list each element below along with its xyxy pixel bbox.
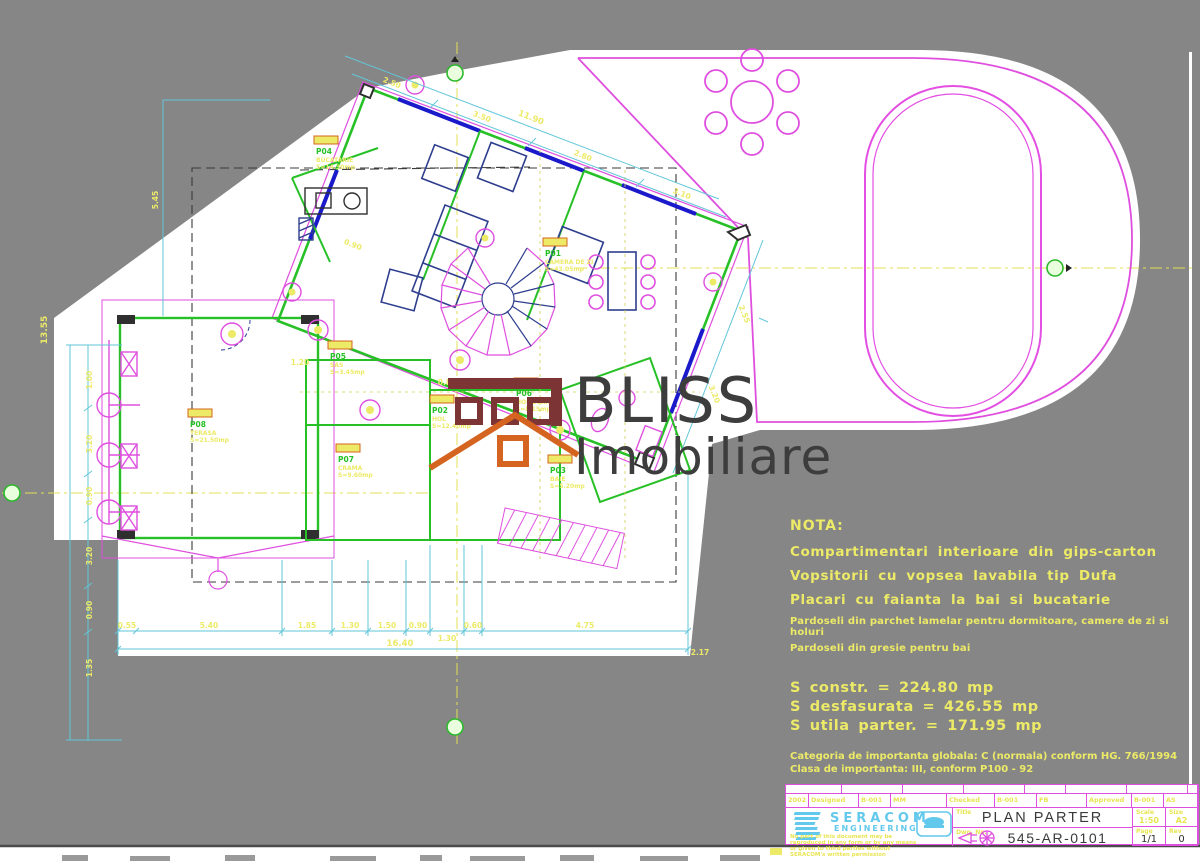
company-disclaimer: No part of this document may be reproduc…: [790, 834, 920, 858]
nota-line: Vopsitorii cu vopsea lavabila tip Dufa: [790, 568, 1190, 584]
tb-field: B-001: [1132, 794, 1164, 807]
nota-line: Compartimentari interioare din gips-cart…: [790, 544, 1190, 560]
svg-text:S=3.45mp: S=3.45mp: [330, 369, 365, 376]
svg-text:P08: P08: [190, 420, 206, 429]
svg-text:P01: P01: [545, 249, 561, 258]
watermark-brand: BLISS: [574, 372, 758, 429]
tb-field: B-001: [859, 794, 891, 807]
tb-field: Approved: [1087, 794, 1132, 807]
svg-text:S=21.50mp: S=21.50mp: [190, 437, 230, 444]
tb-field: AS: [1164, 794, 1198, 807]
rev-cell: Rev 0: [1166, 827, 1198, 846]
svg-text:1.50: 1.50: [378, 621, 397, 630]
cad-viewport: 0.55 5.40 1.85 1.30 1.50 0.90 1.30 0.60 …: [0, 0, 1200, 861]
svg-text:1.30: 1.30: [341, 621, 360, 630]
svg-text:TERASA: TERASA: [190, 430, 217, 437]
svg-text:1.00: 1.00: [85, 371, 94, 390]
svg-text:S=9.60mp: S=9.60mp: [338, 472, 373, 479]
svg-text:SAS: SAS: [330, 362, 343, 369]
format-label: Size: [1169, 809, 1183, 816]
drawing-number: 545-AR-0101: [983, 830, 1132, 846]
car-badge-icon: [916, 811, 952, 837]
scale-value: 1:50: [1133, 816, 1165, 825]
tb-field: 2002: [786, 794, 809, 807]
svg-text:3.20: 3.20: [85, 547, 94, 566]
svg-text:P06: P06: [516, 389, 532, 398]
area-stat: S constr. = 224.80 mp: [790, 680, 1190, 696]
drawing-title: PLAN PARTER: [953, 810, 1132, 826]
svg-text:13.55: 13.55: [40, 316, 50, 344]
svg-text:S=8.15mp: S=8.15mp: [516, 406, 551, 413]
title-block-upper-fragment: [786, 785, 1198, 794]
format-value: A2: [1166, 816, 1197, 825]
area-stat: S utila parter. = 171.95 mp: [790, 718, 1190, 734]
svg-text:P02: P02: [432, 406, 448, 415]
svg-text:CAMERA DE ZI: CAMERA DE ZI: [545, 259, 593, 266]
svg-text:BUCATARIE: BUCATARIE: [316, 157, 353, 164]
importance-category: Categoria de importanta globala: C (norm…: [790, 751, 1190, 762]
svg-text:0.90: 0.90: [409, 621, 428, 630]
title-block-signature-row: 2002 Designed B-001 MM Checked B-001 FB …: [786, 794, 1198, 808]
tb-field: MM: [891, 794, 947, 807]
svg-text:16.40: 16.40: [387, 639, 414, 649]
svg-text:HOL: HOL: [432, 416, 446, 423]
rev-value: 0: [1166, 834, 1197, 845]
nota-small-line: Pardoseli din parchet lamelar pentru dor…: [790, 616, 1190, 638]
title-block: 2002 Designed B-001 MM Checked B-001 FB …: [785, 784, 1199, 845]
svg-text:0.55: 0.55: [118, 621, 137, 630]
svg-text:4.75: 4.75: [576, 621, 595, 630]
scale-cell: Scale 1:50: [1133, 808, 1166, 827]
tb-field: FB: [1037, 794, 1087, 807]
svg-text:0.60: 0.60: [464, 621, 483, 630]
svg-text:1.20: 1.20: [291, 358, 310, 367]
nota-heading: NOTA:: [790, 518, 1190, 534]
scale-label: Scale: [1136, 809, 1154, 816]
svg-text:0.90: 0.90: [85, 487, 94, 506]
tb-field: Checked: [947, 794, 995, 807]
svg-text:5.45: 5.45: [151, 191, 160, 210]
watermark-sub: Imobiliare: [574, 434, 832, 480]
svg-text:P04: P04: [316, 147, 332, 156]
svg-text:BAIE: BAIE: [550, 476, 566, 483]
svg-text:0.90: 0.90: [85, 601, 94, 620]
svg-text:1.85: 1.85: [298, 621, 317, 630]
svg-text:S=14.30mp: S=14.30mp: [316, 164, 356, 171]
nota-block: NOTA: Compartimentari interioare din gip…: [790, 518, 1190, 659]
svg-text:P07: P07: [338, 455, 354, 464]
area-stats-block: S constr. = 224.80 mp S desfasurata = 42…: [790, 680, 1190, 775]
nota-small-line: Pardoseli din gresie pentru bai: [790, 643, 1190, 654]
svg-text:1.35: 1.35: [85, 659, 94, 678]
svg-text:5.40: 5.40: [200, 621, 219, 630]
tb-field: Designed: [809, 794, 859, 807]
nota-line: Placari cu faianta la bai si bucatarie: [790, 592, 1190, 608]
svg-text:S=43.05mp: S=43.05mp: [545, 266, 585, 273]
svg-text:CRAMA: CRAMA: [338, 465, 363, 472]
company-cell: SERACOM ENGINEERING No part of this docu…: [786, 808, 953, 846]
drawing-title-cell: Title PLAN PARTER Dwg. No. 545-AR-0101: [953, 808, 1133, 846]
svg-text:2.17: 2.17: [691, 648, 710, 657]
page-cell: Page 1/1: [1133, 827, 1166, 846]
svg-text:P03: P03: [550, 466, 566, 475]
cropped-text-strip: [0, 846, 1200, 861]
company-subtitle: ENGINEERING: [834, 824, 918, 833]
page-value: 1/1: [1133, 834, 1165, 845]
importance-class: Clasa de importanta: III, conform P100 -…: [790, 764, 1190, 775]
tb-field: B-001: [995, 794, 1037, 807]
scale-format-cell: Scale 1:50 Size A2 Page 1/1 Rev 0: [1133, 808, 1198, 846]
svg-text:1.30: 1.30: [438, 634, 457, 643]
svg-text:P05: P05: [330, 352, 346, 361]
format-cell: Size A2: [1166, 808, 1198, 827]
area-stat: S desfasurata = 426.55 mp: [790, 699, 1190, 715]
svg-text:3.20: 3.20: [85, 435, 94, 454]
